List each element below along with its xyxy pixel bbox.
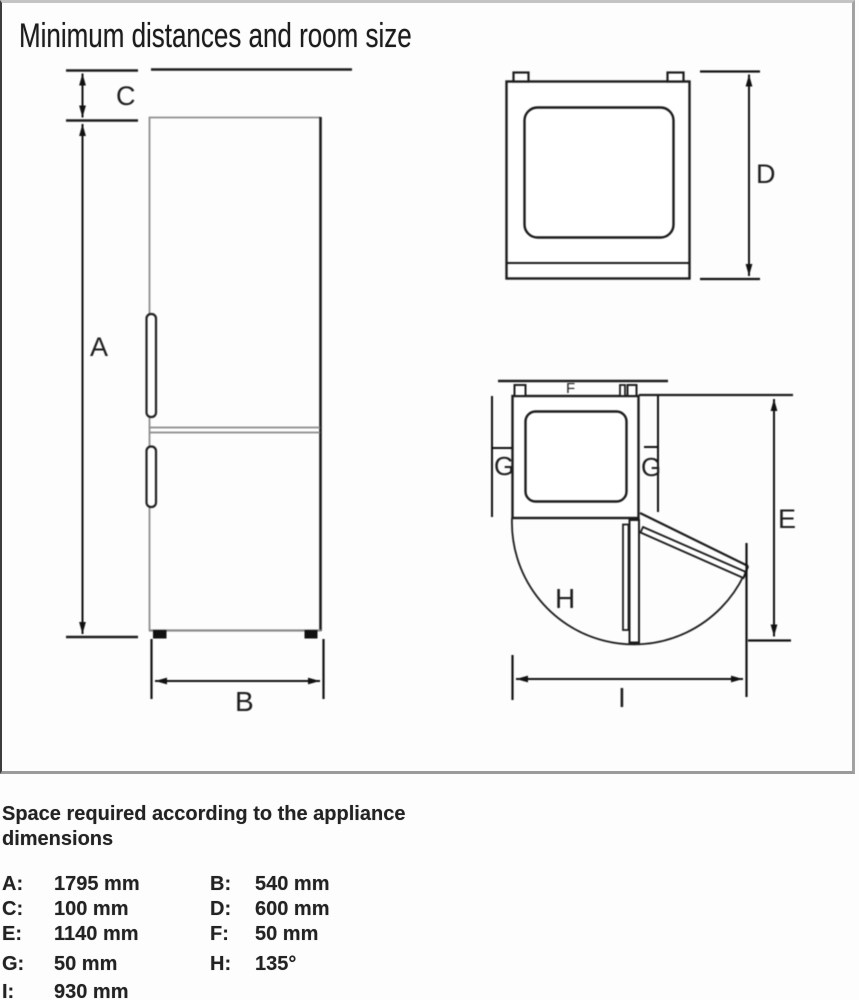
svg-text:F: F [566, 380, 575, 397]
svg-text:A: A [90, 332, 108, 362]
svg-text:C: C [116, 81, 136, 111]
svg-text:E: E [778, 504, 796, 534]
svg-text:G: G [494, 451, 514, 481]
svg-text:B: B [235, 686, 254, 717]
svg-text:H: H [555, 583, 575, 614]
svg-text:G: G [641, 452, 661, 482]
svg-text:D: D [756, 159, 776, 189]
svg-text:I: I [618, 682, 626, 713]
